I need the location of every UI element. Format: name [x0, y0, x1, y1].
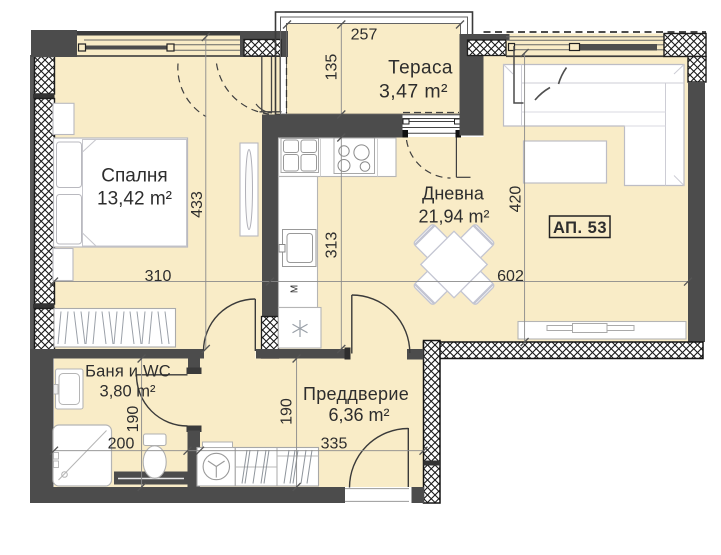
svg-text:190: 190: [125, 406, 142, 433]
svg-text:Баня и WC: Баня и WC: [85, 363, 171, 381]
svg-text:M: M: [290, 285, 301, 293]
svg-text:257: 257: [351, 27, 378, 44]
svg-text:3,47 m²: 3,47 m²: [379, 81, 448, 103]
svg-text:200: 200: [108, 436, 135, 453]
svg-text:313: 313: [324, 232, 341, 259]
svg-text:Спалня: Спалня: [101, 166, 167, 187]
svg-text:420: 420: [508, 186, 525, 213]
svg-text:АП. 53: АП. 53: [553, 219, 607, 237]
svg-text:135: 135: [324, 54, 341, 81]
svg-text:Преддверие: Преддверие: [303, 384, 409, 404]
svg-text:3,80 m²: 3,80 m²: [100, 383, 156, 401]
svg-text:Дневна: Дневна: [422, 184, 485, 204]
svg-text:21,94 m²: 21,94 m²: [418, 207, 489, 227]
svg-text:335: 335: [321, 436, 348, 453]
svg-text:Тераса: Тераса: [388, 58, 453, 79]
svg-text:310: 310: [145, 268, 172, 285]
svg-text:13,42 m²: 13,42 m²: [97, 189, 172, 210]
svg-text:190: 190: [279, 398, 296, 425]
svg-text:433: 433: [189, 191, 206, 218]
svg-text:6,36 m²: 6,36 m²: [328, 405, 389, 425]
svg-text:602: 602: [497, 268, 524, 285]
